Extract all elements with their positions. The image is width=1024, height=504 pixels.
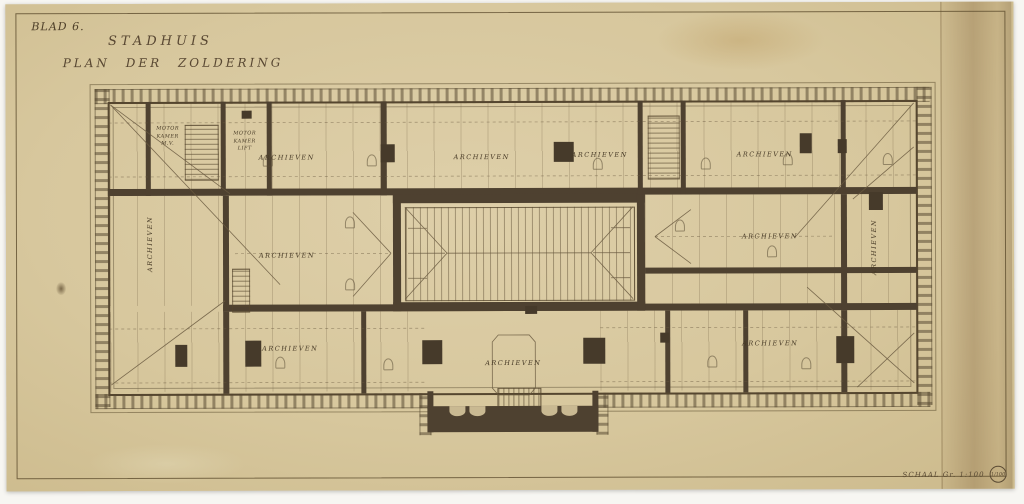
room-label-archieven: ARCHIEVEN [485, 359, 541, 367]
title-line1: STADHUIS [100, 34, 220, 49]
room-label-archieven: ARCHIEVEN [259, 252, 315, 260]
scale-fraction-stamp: 1/100 [990, 466, 1007, 483]
room-label-archieven: ARCHIEVEN [742, 339, 798, 347]
room-label-archieven-vertical: ARCHIEVEN [146, 216, 154, 272]
room-label-archieven-vertical: ARCHIEVEN [870, 219, 878, 275]
room-label-motor-kamer-mv: MOTOR KAMER M.V. [156, 126, 179, 149]
sheet-number: BLAD 6. [31, 20, 84, 33]
room-label-archieven: ARCHIEVEN [454, 153, 510, 161]
scale-label: SCHAAL Gr. 1:100 [903, 470, 985, 478]
room-label-archieven: ARCHIEVEN [742, 232, 798, 240]
scale-note: SCHAAL Gr. 1:100 1/100 [887, 466, 1007, 483]
label-line: MOTOR [156, 126, 179, 132]
label-line: KAMER [234, 138, 256, 144]
room-label-archieven: ARCHIEVEN [737, 150, 793, 158]
room-label-motor-kamer-lift: MOTOR KAMER LIFT [233, 130, 256, 153]
label-line: M.V. [161, 141, 174, 147]
drawing-sheet: BLAD 6. STADHUIS PLAN DER ZOLDERING [5, 2, 1014, 492]
label-line: LIFT [238, 145, 252, 151]
floor-plan: MOTOR KAMER M.V. MOTOR KAMER LIFT ARCHIE… [95, 87, 932, 441]
room-label-archieven: ARCHIEVEN [262, 345, 318, 353]
roof-lines-overlay [95, 87, 932, 441]
room-label-archieven: ARCHIEVEN [259, 154, 315, 162]
label-line: MOTOR [233, 130, 256, 136]
title-line2: PLAN DER ZOLDERING [61, 56, 286, 71]
label-line: KAMER [157, 133, 179, 139]
room-label-archieven: ARCHIEVEN [572, 151, 628, 159]
